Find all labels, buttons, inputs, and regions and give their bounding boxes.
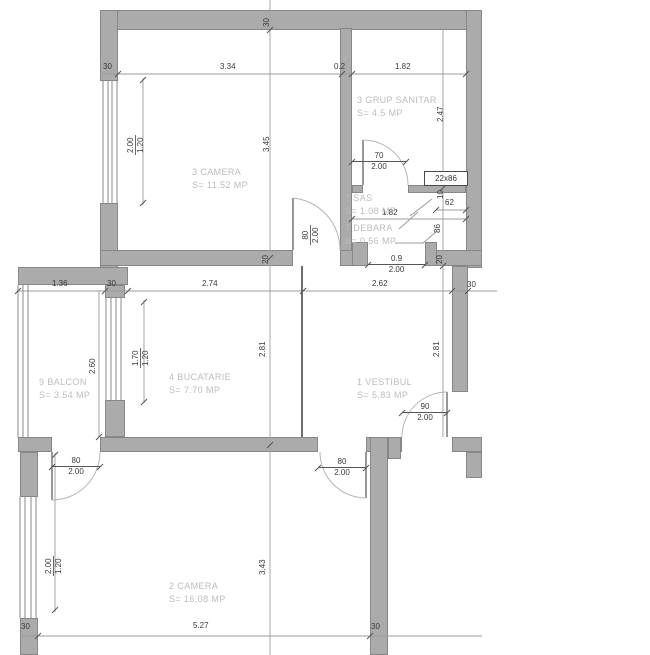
shaft-label: 22x86 xyxy=(435,174,457,183)
dim-door-sas-height: 2.00 xyxy=(311,225,320,245)
dim-window-camera3: 2.00 1.20 xyxy=(126,135,145,155)
dim-bottom-right-30: 30 xyxy=(371,622,380,631)
dim-mid-274: 2.74 xyxy=(202,279,218,288)
shaft-box: 22x86 xyxy=(424,171,468,186)
floor-plan: 22x86 30 3.34 0.2 1.82 1.36 30 2.74 2.62… xyxy=(0,0,650,655)
dim-mid-right-30: 30 xyxy=(467,280,476,289)
marker-mid-wall-20-right: 20 xyxy=(435,255,444,264)
room-name: 9 BALCON xyxy=(39,376,90,389)
room-label-bucatarie: 4 BUCATARIE S= 7.70 MP xyxy=(169,371,231,397)
room-name: 7 SAS xyxy=(345,192,396,205)
dim-bottom-527: 5.27 xyxy=(193,621,209,630)
room-label-camera3: 3 CAMERA S= 11.52 MP xyxy=(192,166,248,192)
dim-door-sas-width: 80 xyxy=(301,225,311,245)
room-label-sas: 7 SAS S= 1.08 MP xyxy=(345,192,396,218)
dim-kitchen-height-281: 2.81 xyxy=(258,341,267,357)
wall-bottom-mid-1 xyxy=(18,437,52,452)
dim-door-vestibul-height: 2.00 xyxy=(402,413,448,423)
room-name: 4 BUCATARIE xyxy=(169,371,231,384)
wall-bottom-mid-2 xyxy=(100,437,318,452)
room-area: S= 16.08 MP xyxy=(169,593,226,606)
dim-door-balcony-width: 80 xyxy=(52,456,100,467)
dim-door-debara: 0.9 2.00 xyxy=(368,254,425,275)
room-area: S= 7.70 MP xyxy=(169,384,231,397)
room-area: S= 3.54 MP xyxy=(39,389,90,402)
dim-door-camera2: 80 2.00 xyxy=(318,457,366,478)
wall-balcony-kitchen-bottom xyxy=(105,400,125,437)
room-label-camera2: 2 CAMERA S= 16.08 MP xyxy=(169,580,226,606)
marker-top-wall-30: 30 xyxy=(262,18,271,27)
wall-right-top xyxy=(466,10,482,268)
room-area: S= 4.5 MP xyxy=(357,107,437,120)
dim-mid-136: 1.36 xyxy=(52,279,68,288)
dim-window-camera3-width: 2.00 xyxy=(126,135,136,155)
dim-top-182: 1.82 xyxy=(395,62,411,71)
dim-door-debara-height: 2.00 xyxy=(368,265,425,275)
room-label-debara: 7 DEBARA S= 0.56 MP xyxy=(345,222,396,248)
dim-shaft-86: 86 xyxy=(433,224,442,233)
dim-top-02: 0.2 xyxy=(334,62,345,71)
dim-mid-30: 30 xyxy=(107,279,116,288)
room-name: 3 CAMERA xyxy=(192,166,248,179)
dim-vestibul-height-281: 2.81 xyxy=(432,341,441,357)
dim-door-sas: 80 2.00 xyxy=(301,225,320,245)
dim-top-wall-30: 30 xyxy=(103,62,112,71)
room-name: 7 DEBARA xyxy=(345,222,396,235)
dim-door-debara-width: 0.9 xyxy=(368,254,425,265)
dim-door-camera2-width: 80 xyxy=(318,457,366,468)
dim-window-camera2-width: 2.00 xyxy=(44,556,54,576)
plan-lines xyxy=(0,0,650,655)
wall-vestibul-right xyxy=(452,266,468,392)
room-area: S= 1.08 MP xyxy=(345,205,396,218)
dim-shaft-62: 62 xyxy=(445,198,454,207)
dim-door-balcony: 80 2.00 xyxy=(52,456,100,477)
dim-top-334: 3.34 xyxy=(220,62,236,71)
dim-door-gs-height: 2.00 xyxy=(352,162,406,172)
dim-door-vestibul-width: 90 xyxy=(402,402,448,413)
dim-window-kitchen-width: 1.70 xyxy=(131,348,141,368)
wall-corner-entrance xyxy=(452,437,482,452)
dim-door-balcony-height: 2.00 xyxy=(52,467,100,477)
marker-mid-wall-20-left: 20 xyxy=(261,255,270,264)
dim-mid-262: 2.62 xyxy=(372,279,388,288)
room-label-vestibul: 1 VESTIBUL S= 5.83 MP xyxy=(357,376,412,402)
room-area: S= 11.52 MP xyxy=(192,179,248,192)
dim-window-camera2: 2.00 1.20 xyxy=(44,556,63,576)
wall-top xyxy=(100,10,482,30)
dim-door-gs: 70 2.00 xyxy=(352,151,406,172)
dim-window-camera2-parapet: 1.20 xyxy=(54,556,63,576)
room-name: 1 VESTIBUL xyxy=(357,376,412,389)
dim-window-camera3-parapet: 1.20 xyxy=(136,135,145,155)
room-area: S= 0.56 MP xyxy=(345,235,396,248)
dim-camera3-height-345: 3.45 xyxy=(262,136,271,152)
dim-door-camera2-height: 2.00 xyxy=(318,468,366,478)
dim-camera2-height-343: 3.43 xyxy=(258,559,267,575)
room-name: 3 GRUP SANITAR xyxy=(357,94,437,107)
room-label-balcon: 9 BALCON S= 3.54 MP xyxy=(39,376,90,402)
marker-thin-wall-10: 10 xyxy=(436,190,445,199)
room-label-grup-sanitar: 3 GRUP SANITAR S= 4.5 MP xyxy=(357,94,437,120)
dim-window-kitchen-parapet: 1.20 xyxy=(141,348,150,368)
wall-camera2-left-top xyxy=(20,452,38,497)
dim-door-gs-width: 70 xyxy=(352,151,406,162)
dim-bottom-left-30: 30 xyxy=(21,622,30,631)
wall-camera2-right-bump xyxy=(388,437,401,459)
dim-window-kitchen: 1.70 1.20 xyxy=(131,348,150,368)
wall-stub-right xyxy=(466,452,482,478)
dim-door-vestibul: 90 2.00 xyxy=(402,402,448,423)
dim-balcony-height-260: 2.60 xyxy=(88,358,97,374)
dim-gs-height-247: 2.47 xyxy=(436,106,445,122)
room-name: 2 CAMERA xyxy=(169,580,226,593)
room-area: S= 5.83 MP xyxy=(357,389,412,402)
